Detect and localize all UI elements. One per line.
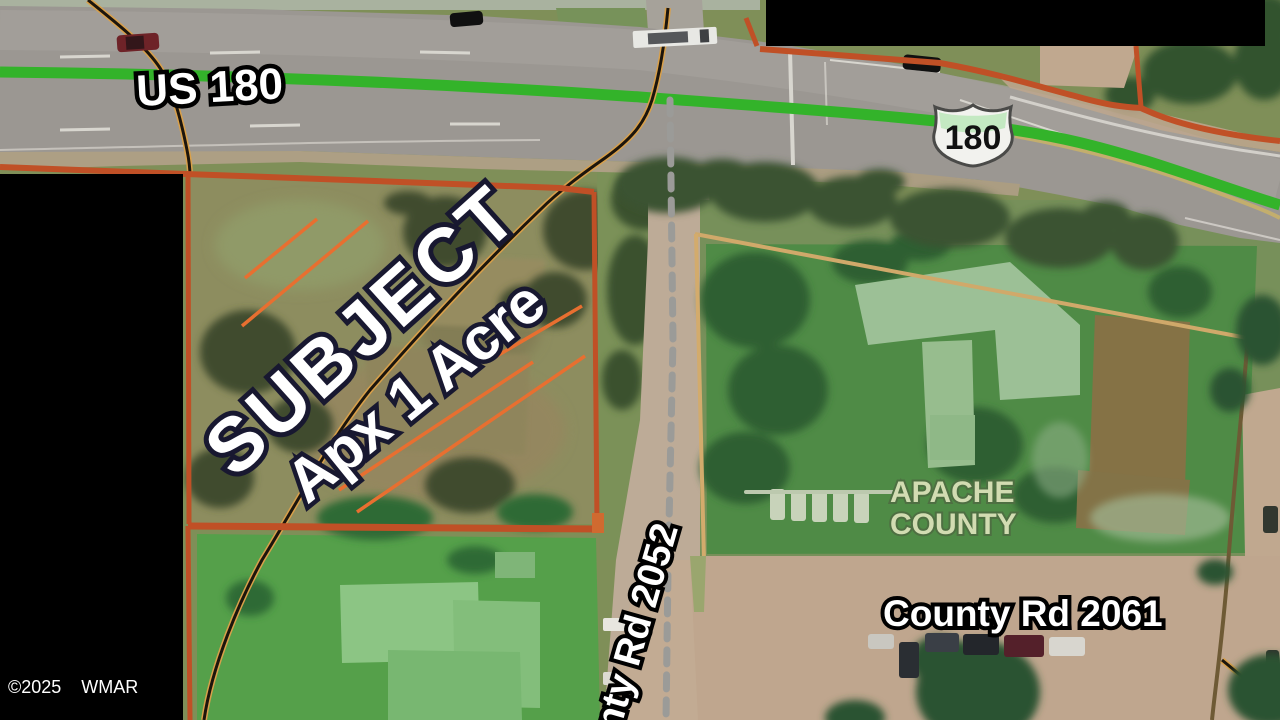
svg-text:US 180: US 180 bbox=[135, 59, 284, 116]
svg-text:County Rd 2061: County Rd 2061 bbox=[883, 593, 1163, 634]
svg-text:180: 180 bbox=[945, 119, 1002, 157]
svg-text:©2025 WMAR: ©2025 WMAR bbox=[8, 677, 138, 697]
svg-text:APACHE: APACHE bbox=[890, 476, 1014, 509]
svg-text:COUNTY: COUNTY bbox=[890, 508, 1017, 541]
